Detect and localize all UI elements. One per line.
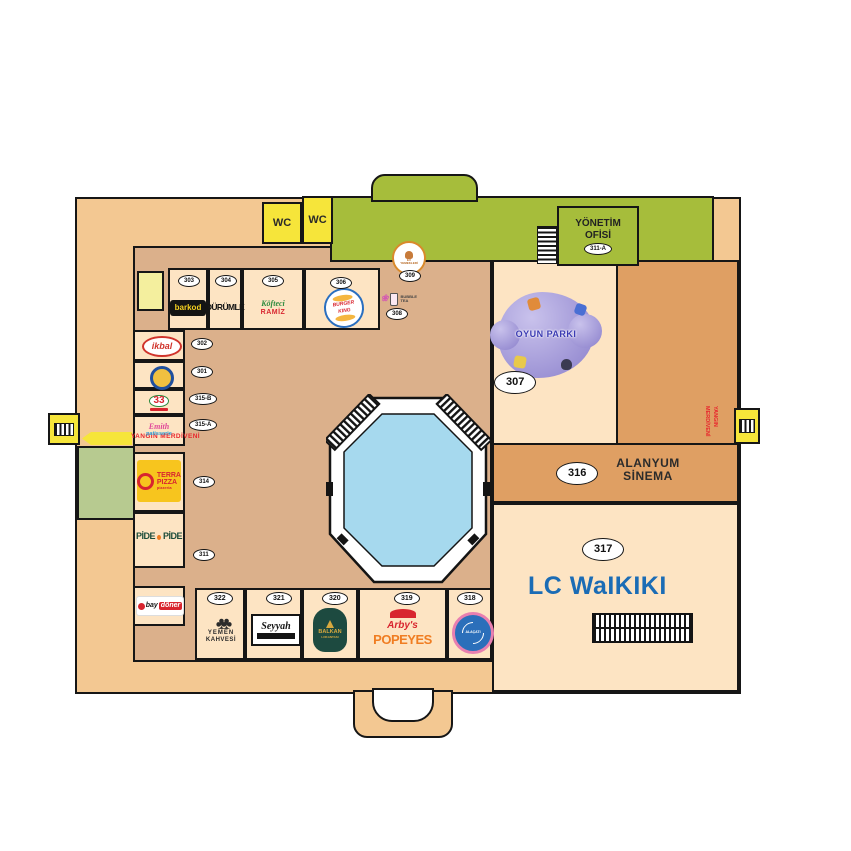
east-service-area [616, 260, 739, 445]
unit-badge-302: 302 [191, 338, 213, 350]
cup-icon [390, 293, 398, 306]
yemen-kahvesi-logo: ♣♣ YEMEN KAHVESİ [199, 608, 243, 652]
unit-badge-320: 320 [322, 592, 348, 605]
arbys-popeyes-logo: Arby's POPEYES [360, 602, 445, 654]
fire-exit-left-tab [48, 413, 80, 445]
character-icon [527, 297, 542, 312]
stairs-right-icon [739, 419, 755, 433]
management-office-label-2: OFİSİ [585, 230, 611, 241]
tree-icon: ♣♣ [216, 617, 226, 631]
seyyah-bar-icon [257, 633, 295, 639]
seyyah-logo: Seyyah [251, 614, 301, 646]
service-cell [137, 271, 164, 311]
unit-badge-309: 309 [399, 270, 421, 282]
unit-badge-322: 322 [207, 592, 233, 605]
kofteci-logo: Köfteci RAMİZ [246, 296, 300, 320]
unit-badge-308: 308 [386, 308, 408, 320]
green-zone [330, 196, 714, 262]
flame-icon [326, 620, 334, 628]
unit-badge-321: 321 [266, 592, 292, 605]
unit-badge-311: 311 [193, 549, 215, 561]
atrium-octagon [326, 394, 490, 586]
unit-badge-311a: 311-A [584, 243, 612, 255]
south-entrance-door [372, 688, 434, 722]
west-green-room [77, 446, 135, 520]
simit-logo [150, 366, 174, 390]
bubble-tea-script-icon: ❀ [381, 294, 389, 304]
pide-pide-logo: PİDE PİDE [136, 530, 182, 544]
barkod-logo: barkod [170, 300, 206, 316]
escalator-317 [592, 613, 693, 643]
wc-room-2[interactable]: WC [302, 196, 333, 244]
33-banner-icon [150, 408, 168, 411]
durumle-logo: DÜRÜMLE [206, 300, 244, 316]
unit-badge-317: 317 [582, 538, 624, 561]
baydoner-icon [138, 603, 145, 610]
unit-badge-304: 304 [215, 275, 237, 287]
terra-pizza-logo: TERRA PIZZA pizzeria [137, 460, 181, 502]
unit-badge-316: 316 [556, 462, 598, 485]
mall-floorplan: WC WC YÖNETİM OFİSİ 311-A YANGIN MERDİVE… [0, 0, 851, 851]
pretzel-icon [137, 473, 154, 490]
character-icon [513, 355, 527, 369]
character-icon [561, 359, 572, 370]
fire-exit-right-label: YANGIN MERDİVENİ [701, 406, 719, 452]
unit-badge-319: 319 [394, 592, 420, 605]
fire-exit-left-arrow-icon [82, 432, 132, 445]
wc-room-1[interactable]: WC [262, 202, 302, 244]
stairs-left-icon [54, 423, 74, 436]
balkan-logo: BALKAN LOKANTASI [313, 608, 347, 652]
patisserie-logo: Emith patisserie [138, 419, 180, 441]
pide-dot-icon [157, 535, 161, 540]
unit-badge-307: 307 [494, 371, 536, 394]
north-bump [371, 174, 478, 202]
wc-label: WC [273, 217, 291, 229]
bubble-tea-logo: ❀ BUBBLE TEA [376, 291, 422, 307]
unit-badge-306: 306 [330, 277, 352, 289]
unit-badge-318: 318 [457, 592, 483, 605]
stairs-office [537, 226, 557, 264]
unit-badge-314: 314 [193, 476, 215, 488]
alacati-logo: ALAÇATI [452, 612, 494, 654]
thirtythree-logo: 33 [144, 392, 174, 413]
ikbal-logo: ikbal [142, 336, 182, 357]
unit-badge-305: 305 [262, 275, 284, 287]
management-office-label-1: YÖNETİM [575, 218, 621, 229]
arbys-hat-icon [390, 609, 416, 618]
wc-label: WC [308, 214, 326, 226]
cinema-label: ALANYUM SİNEMA [598, 452, 698, 488]
unit-badge-301: 301 [191, 366, 213, 378]
unit-badge-303: 303 [178, 275, 200, 287]
baydoner-logo: bay döner [136, 596, 184, 616]
lc-waikiki-logo: LC WaIKIKI [528, 572, 667, 601]
management-office[interactable]: YÖNETİM OFİSİ 311-A [557, 206, 639, 266]
fire-exit-right-tab [734, 408, 760, 444]
